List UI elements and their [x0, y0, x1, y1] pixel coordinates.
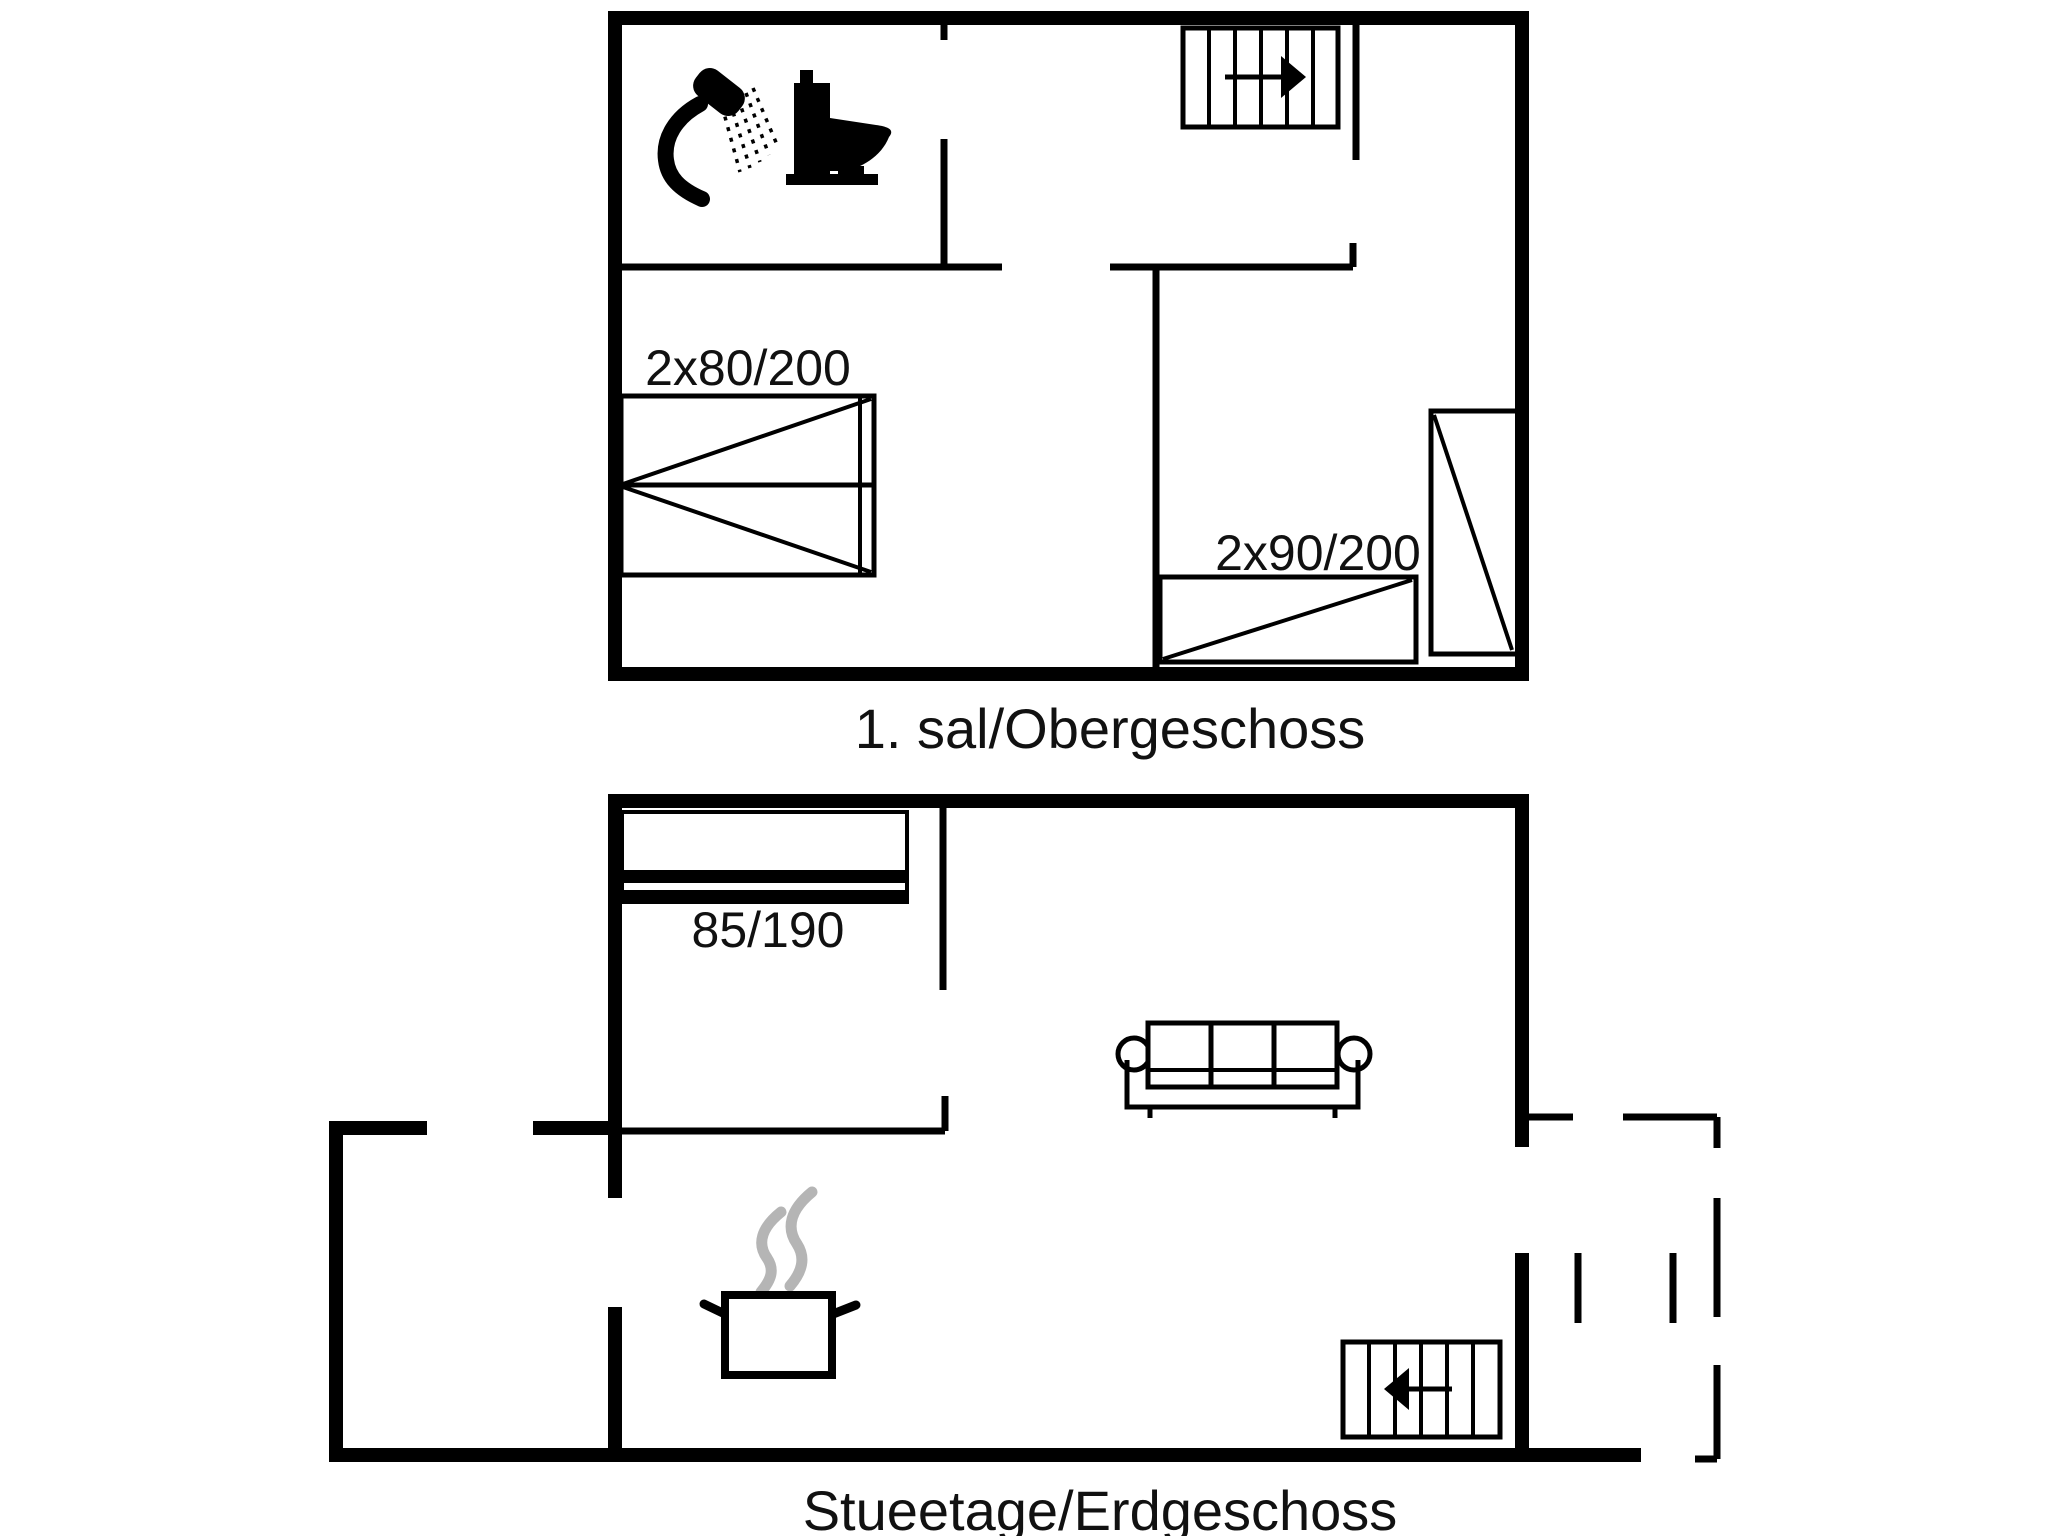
toilet-icon	[786, 70, 891, 185]
shower-icon	[666, 63, 778, 199]
upper-floor-caption: 1. sal/Obergeschoss	[855, 697, 1365, 760]
bed-label-2x80-200: 2x80/200	[645, 340, 851, 396]
sofa-icon	[1118, 1023, 1370, 1118]
staircase-up	[1183, 28, 1338, 127]
steam-icon	[761, 1192, 812, 1292]
ground-floor-plan: 85/190	[329, 794, 1717, 1536]
bed-label-2x90-200: 2x90/200	[1215, 525, 1421, 581]
arrow-right-icon	[1225, 56, 1306, 98]
bed-2x90-200-vertical	[1431, 411, 1515, 654]
floorplan-page: 2x80/200 2x90/200 1. sal/Obergeschoss 85…	[0, 0, 2048, 1536]
cooking-pot-icon	[704, 1295, 856, 1375]
staircase-down	[1343, 1342, 1500, 1437]
bed-2x80-200	[621, 396, 874, 575]
upper-floor-plan: 2x80/200 2x90/200 1. sal/Obergeschoss	[615, 18, 1522, 760]
floorplan-drawing: 2x80/200 2x90/200 1. sal/Obergeschoss 85…	[0, 0, 2048, 1536]
terrace-dashed-outline	[1529, 1117, 1717, 1459]
ground-floor-caption: Stueetage/Erdgeschoss	[803, 1479, 1398, 1536]
bed-2x90-200-horizontal	[1160, 577, 1416, 662]
bed-label-85-190: 85/190	[692, 902, 845, 958]
ground-floor-outer-walls	[329, 794, 1641, 1462]
ground-floor-interior-walls	[622, 807, 945, 1131]
bed-85-190	[622, 812, 907, 902]
